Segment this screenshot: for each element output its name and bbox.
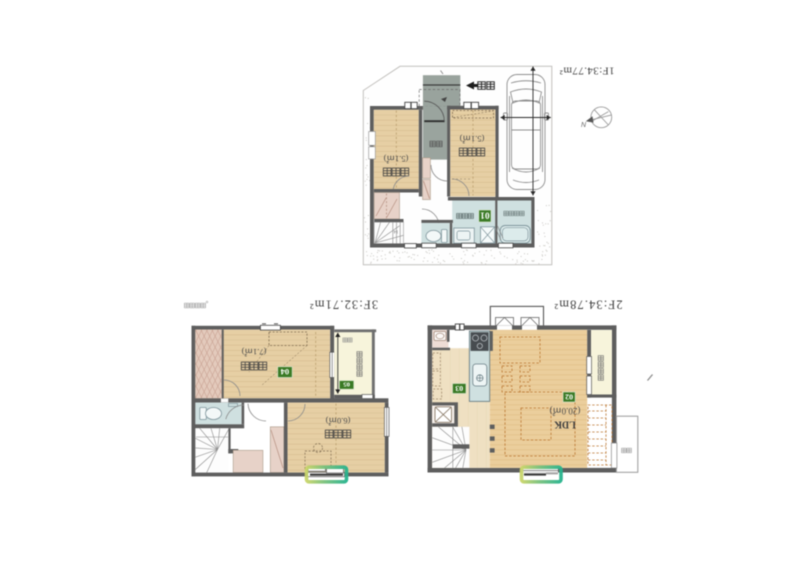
svg-text:(6.0㎡): (6.0㎡) xyxy=(325,416,350,426)
svg-text:1F:34.77m²: 1F:34.77m² xyxy=(559,65,615,77)
svg-text:LDK: LDK xyxy=(554,419,576,430)
svg-text:04: 04 xyxy=(280,367,289,377)
svg-text:3F:32.71m²: 3F:32.71m² xyxy=(309,298,378,312)
svg-text:03: 03 xyxy=(455,384,463,393)
svg-text:(5.1㎡): (5.1㎡) xyxy=(383,154,408,164)
svg-text:05: 05 xyxy=(343,381,350,388)
svg-text:(7.1㎡): (7.1㎡) xyxy=(241,347,266,357)
svg-text:02: 02 xyxy=(565,392,573,401)
svg-text:(5.1㎡): (5.1㎡) xyxy=(459,134,484,144)
svg-text:01: 01 xyxy=(480,210,490,220)
svg-text:(20.0㎡): (20.0㎡) xyxy=(550,406,581,416)
svg-text:2F:34.78m²: 2F:34.78m² xyxy=(553,297,622,311)
svg-text:14: 14 xyxy=(393,229,398,234)
